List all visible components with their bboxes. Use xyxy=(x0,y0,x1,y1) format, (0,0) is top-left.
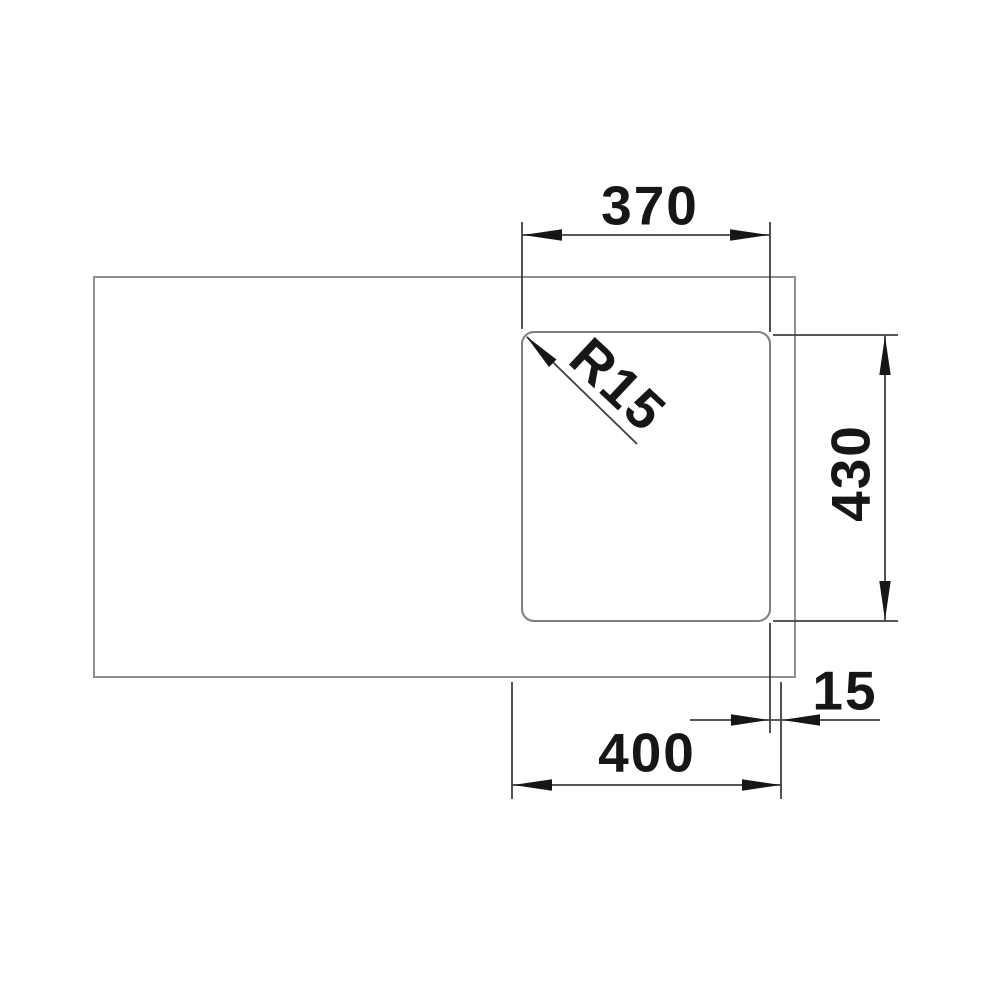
dim-label-edge-offset: 15 xyxy=(812,664,877,719)
dim-label-bowl-width: 370 xyxy=(601,179,699,234)
arrowhead-right-icon xyxy=(730,229,769,240)
arrowhead-left-icon xyxy=(513,779,552,790)
arrowhead-up-icon xyxy=(879,336,890,375)
sink-outline xyxy=(94,277,795,677)
dim-label-bowl-depth: 430 xyxy=(824,424,879,522)
arrowhead-inward-right-icon xyxy=(731,714,769,725)
arrowhead-right-icon xyxy=(742,779,781,790)
dim-label-cutout-width: 400 xyxy=(598,726,696,781)
arrowhead-down-icon xyxy=(879,581,890,620)
arrowhead-radius-icon xyxy=(526,336,557,367)
technical-drawing-canvas: 370 R15 430 15 400 xyxy=(0,0,992,992)
arrowhead-left-icon xyxy=(523,229,562,240)
